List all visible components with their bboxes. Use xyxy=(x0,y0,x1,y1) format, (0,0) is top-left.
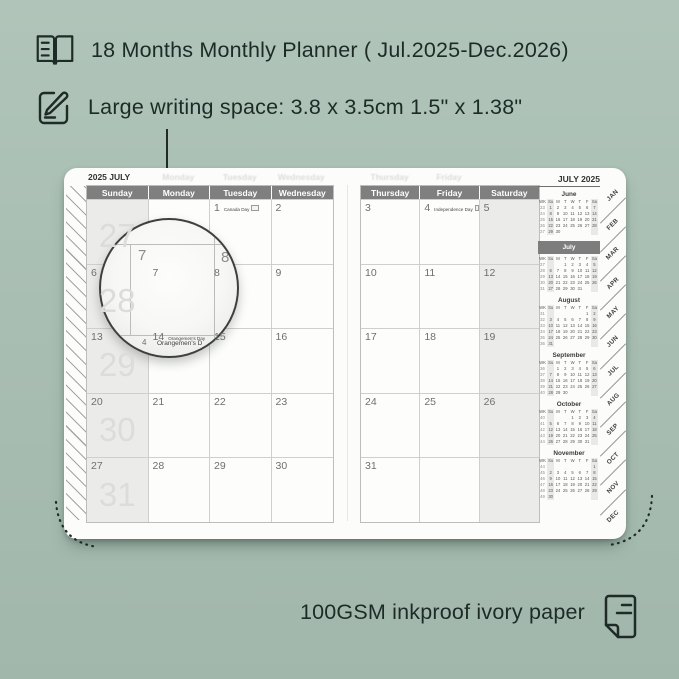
month-tab-label: DEC xyxy=(605,509,620,524)
mini-day-cell: 28 xyxy=(562,439,569,445)
date-number: 22 xyxy=(214,396,226,408)
date-number: 28 xyxy=(153,460,165,472)
planner-product-image: 18 Months Monthly Planner ( Jul.2025-Dec… xyxy=(0,0,679,679)
month-tab-jan: JAN xyxy=(600,181,626,210)
mini-day-cell: 30 xyxy=(569,286,576,292)
day-cell: 2913 xyxy=(87,328,149,393)
month-tab-dec: DEC xyxy=(600,502,626,531)
holiday-label: Independence Day xyxy=(434,207,473,212)
day-header: Thursday xyxy=(361,186,420,199)
cell-content: 9 xyxy=(272,265,334,279)
day-cell: 4Independence Day xyxy=(420,199,479,264)
date-number: 23 xyxy=(276,396,288,408)
mini-grid: WKSuMTWTFSa36123456377891011121338141516… xyxy=(538,360,600,396)
mini-day-cell: 30 xyxy=(562,390,569,396)
month-tab-label: JAN xyxy=(606,188,620,202)
day-cell: 14Orangemen's Day xyxy=(149,328,211,393)
mini-month-title: October xyxy=(538,401,600,408)
month-tab-label: MAY xyxy=(605,305,620,320)
cell-content: 29 xyxy=(210,458,271,472)
right-page-showthrough: ThursdayFriday xyxy=(360,172,538,183)
day-cell: 22 xyxy=(210,393,272,458)
cell-content: 23 xyxy=(272,394,334,408)
feature-paper: 100GSM inkproof ivory paper xyxy=(300,600,585,625)
mini-day-cell: 31 xyxy=(547,341,554,347)
day-cell: 17 xyxy=(361,328,420,393)
day-cell: 21 xyxy=(149,393,211,458)
date-number: 10 xyxy=(365,267,377,279)
mini-day-cell xyxy=(562,341,569,347)
month-tab-label: JUL xyxy=(606,364,620,378)
feature-paper-text: 100GSM inkproof ivory paper xyxy=(300,600,585,625)
mini-day-cell xyxy=(576,494,583,500)
ghost-day-header: Friday xyxy=(419,172,478,183)
week-number-watermark: 30 xyxy=(99,411,136,449)
cell-content: 31 xyxy=(361,458,419,472)
day-cell: 16 xyxy=(272,328,334,393)
day-cell: 3 xyxy=(361,199,420,264)
mini-day-cell xyxy=(562,494,569,500)
mini-day-cell xyxy=(583,341,590,347)
cell-content: 27 xyxy=(87,458,148,472)
day-cell: 19 xyxy=(480,328,539,393)
cell-content: 21 xyxy=(149,394,210,408)
mini-day-cell: 30 xyxy=(554,229,561,235)
mini-day-cell: 26 xyxy=(547,439,554,445)
date-number: 15 xyxy=(214,331,226,343)
mini-grid: WKSuMTWTFSa44145234567846910111213141547… xyxy=(538,458,600,500)
mini-day-cell xyxy=(591,229,598,235)
cell-content: 15 xyxy=(210,329,271,343)
month-tab-jun: JUN xyxy=(600,327,626,356)
month-tab-feb: FEB xyxy=(600,210,626,239)
holiday-label: Canada Day xyxy=(224,207,250,212)
day-cell: 29 xyxy=(210,457,272,522)
month-tab-label: OCT xyxy=(605,451,620,466)
cell-content: 6 xyxy=(87,265,148,279)
cell-content: 19 xyxy=(480,329,539,343)
day-cell xyxy=(480,457,539,522)
day-cell: 12 xyxy=(480,264,539,329)
mini-month-title: November xyxy=(538,450,600,457)
day-cell: 23 xyxy=(272,393,334,458)
mini-day-cell xyxy=(591,439,598,445)
magnified-date-8: 8 xyxy=(221,249,229,266)
cell-content: 25 xyxy=(420,394,478,408)
date-number: 7 xyxy=(153,267,159,279)
day-header: Sunday xyxy=(87,186,149,199)
mini-day-cell xyxy=(591,390,598,396)
day-cell: 9 xyxy=(272,264,334,329)
date-number: 8 xyxy=(214,267,220,279)
cell-content: 22 xyxy=(210,394,271,408)
cell-content: 8 xyxy=(210,265,271,279)
day-header: Tuesday xyxy=(210,186,272,199)
mini-day-cell xyxy=(583,494,590,500)
cell-content: 28 xyxy=(149,458,210,472)
mini-day-cell: 40 xyxy=(538,390,547,396)
mini-grid: WKSuMTWTFSa27123452867891011122913141516… xyxy=(538,256,600,292)
mini-day-cell xyxy=(583,229,590,235)
cell-content xyxy=(420,458,478,460)
mini-day-cell xyxy=(562,229,569,235)
magnified-date-7: 7 xyxy=(138,247,146,264)
week-number-watermark: 28 xyxy=(99,282,136,320)
month-tab-may: MAY xyxy=(600,298,626,327)
mini-grid: WKSuMTWTFSa40123441567891011421213141516… xyxy=(538,409,600,445)
date-number: 18 xyxy=(424,331,436,343)
date-number: 6 xyxy=(91,267,97,279)
mini-month-title: June xyxy=(538,191,600,198)
date-number: 26 xyxy=(484,396,496,408)
date-number: 17 xyxy=(365,331,377,343)
day-cell: 18 xyxy=(420,328,479,393)
day-cell: 3020 xyxy=(87,393,149,458)
cell-content: 4Independence Day xyxy=(420,200,478,214)
mini-day-cell: 36 xyxy=(538,341,547,347)
month-tab-label: FEB xyxy=(606,218,620,232)
day-cell: 30 xyxy=(272,457,334,522)
date-number: 9 xyxy=(276,267,282,279)
open-book-icon xyxy=(33,30,77,70)
ghost-day-header: Thursday xyxy=(360,172,419,183)
us-flag-icon xyxy=(475,205,479,211)
cell-content: 20 xyxy=(87,394,148,408)
mini-day-cell xyxy=(583,390,590,396)
mini-calendar-november: NovemberWKSuMTWTFSa441452345678469101112… xyxy=(538,449,600,500)
month-tab-label: JUN xyxy=(606,334,620,348)
cell-content: 3 xyxy=(361,200,419,214)
day-header: Saturday xyxy=(480,186,539,199)
paper-icon xyxy=(597,591,643,643)
mini-day-cell xyxy=(591,286,598,292)
mini-month-title: September xyxy=(538,352,600,359)
left-page-showthrough: MondayTuesdayWednesday xyxy=(86,172,332,183)
month-tab-mar: MAR xyxy=(600,239,626,268)
cell-content: 12 xyxy=(480,265,539,279)
feature-months-range-text: 18 Months Monthly Planner ( Jul.2025-Dec… xyxy=(91,38,569,63)
day-header: Monday xyxy=(149,186,211,199)
cell-content: 26 xyxy=(480,394,539,408)
cell-content: 13 xyxy=(87,329,148,343)
date-number: 27 xyxy=(91,460,103,472)
day-cell: 25 xyxy=(420,393,479,458)
month-tab-apr: APR xyxy=(600,269,626,298)
mini-day-cell xyxy=(591,494,598,500)
mini-day-cell: 29 xyxy=(547,229,554,235)
date-number: 19 xyxy=(484,331,496,343)
mini-day-cell xyxy=(554,494,561,500)
cell-content: 7 xyxy=(149,265,210,279)
date-number: 11 xyxy=(424,267,435,279)
page-spine-line xyxy=(347,185,348,521)
mini-day-cell xyxy=(569,390,576,396)
date-number: 1 xyxy=(214,202,220,214)
month-tab-label: MAR xyxy=(605,246,621,262)
day-header: Friday xyxy=(420,186,479,199)
mini-day-cell: 31 xyxy=(576,286,583,292)
month-tab-aug: AUG xyxy=(600,385,626,414)
month-tab-oct: OCT xyxy=(600,444,626,473)
mini-day-cell: 28 xyxy=(554,286,561,292)
mini-calendar-august: AugustWKSuMTWTFSa31123234567893310111213… xyxy=(538,296,600,347)
right-calendar-grid: ThursdayFridaySaturday34Independence Day… xyxy=(360,185,540,523)
mini-day-cell xyxy=(583,286,590,292)
mini-calendar-june: JuneWKSuMTWTFSa2312345672489101112131425… xyxy=(538,190,600,235)
mini-day-cell: 27 xyxy=(547,286,554,292)
mini-day-cell xyxy=(554,341,561,347)
cell-content: 14Orangemen's Day xyxy=(149,329,210,343)
date-number: 12 xyxy=(484,267,496,279)
cell-content: 10 xyxy=(361,265,419,279)
pencil-note-icon xyxy=(33,84,75,130)
day-cell: 3127 xyxy=(87,457,149,522)
date-number: 31 xyxy=(365,460,377,472)
cell-content: 1Canada Day xyxy=(210,200,271,214)
date-number: 30 xyxy=(276,460,288,472)
mini-day-cell: 31 xyxy=(538,286,547,292)
day-cell: 5 xyxy=(480,199,539,264)
week-number-watermark: 29 xyxy=(99,346,136,384)
mini-calendar-september: SeptemberWKSuMTWTFSa36123456377891011121… xyxy=(538,351,600,396)
cell-content: 5 xyxy=(480,200,539,214)
mini-day-cell xyxy=(591,341,598,347)
holiday-label: Orangemen's Day xyxy=(168,336,205,341)
mini-calendars: JuneWKSuMTWTFSa2312345672489101112131425… xyxy=(538,190,600,500)
week-number-watermark: 27 xyxy=(99,217,136,255)
date-number: 29 xyxy=(214,460,226,472)
day-cell: 15 xyxy=(210,328,272,393)
date-number: 14 xyxy=(153,331,165,343)
day-cell: 26 xyxy=(480,393,539,458)
mini-grid: WKSuMTWTFSa31123234567893310111213141516… xyxy=(538,305,600,347)
mini-day-cell: 29 xyxy=(554,390,561,396)
month-tab-strip: JANFEBMARAPRMAYJUNJULAUGSEPOCTNOVDEC xyxy=(600,181,626,532)
cell-content: 24 xyxy=(361,394,419,408)
date-number: 16 xyxy=(276,331,288,343)
day-cell: 11 xyxy=(420,264,479,329)
ghost-day-header xyxy=(86,172,148,183)
mini-day-cell xyxy=(569,494,576,500)
month-tab-nov: NOV xyxy=(600,473,626,502)
day-cell xyxy=(420,457,479,522)
date-number: 13 xyxy=(91,331,103,343)
feature-writing-space-text: Large writing space: 3.8 x 3.5cm 1.5" x … xyxy=(88,95,522,120)
cell-content: 2 xyxy=(272,200,334,214)
ghost-day-header: Tuesday xyxy=(209,172,271,183)
mini-day-cell xyxy=(576,341,583,347)
date-number: 4 xyxy=(424,202,430,214)
date-number: 25 xyxy=(424,396,436,408)
mini-calendar-sidebar: JULY 2025 JuneWKSuMTWTFSa231234567248910… xyxy=(538,174,600,500)
mini-day-cell: 28 xyxy=(547,390,554,396)
mini-day-cell xyxy=(576,229,583,235)
ghost-day-header: Wednesday xyxy=(271,172,333,183)
mini-day-cell: 31 xyxy=(583,439,590,445)
month-tab-label: NOV xyxy=(605,480,620,495)
month-tab-jul: JUL xyxy=(600,356,626,385)
current-month-bar: July xyxy=(538,241,600,254)
mini-day-cell: 29 xyxy=(569,439,576,445)
day-cell: 24 xyxy=(361,393,420,458)
mini-calendar-october: OctoberWKSuMTWTFSa4012344156789101142121… xyxy=(538,400,600,445)
mini-grid: WKSuMTWTFSa23123456724891011121314251516… xyxy=(538,199,600,235)
cell-content: 11 xyxy=(420,265,478,279)
cell-content xyxy=(149,200,210,202)
day-cell: 31 xyxy=(361,457,420,522)
day-cell: 2 xyxy=(272,199,334,264)
week-number-watermark: 31 xyxy=(99,476,136,514)
date-number: 24 xyxy=(365,396,377,408)
mini-day-cell: 30 xyxy=(576,439,583,445)
sidebar-month-title: JULY 2025 xyxy=(538,174,600,187)
cell-content: 30 xyxy=(272,458,334,472)
date-number: 2 xyxy=(276,202,282,214)
mini-day-cell: 44 xyxy=(538,439,547,445)
month-tab-sep: SEP xyxy=(600,415,626,444)
mini-day-cell: 30 xyxy=(547,494,554,500)
feature-writing-space: Large writing space: 3.8 x 3.5cm 1.5" x … xyxy=(33,84,522,130)
cell-content: 18 xyxy=(420,329,478,343)
mini-day-cell xyxy=(576,390,583,396)
mini-month-title: August xyxy=(538,297,600,304)
cell-content: 17 xyxy=(361,329,419,343)
mini-day-cell: 27 xyxy=(554,439,561,445)
cell-content xyxy=(87,200,148,202)
month-tab-label: SEP xyxy=(606,422,620,436)
date-number: 5 xyxy=(484,202,490,214)
mini-calendar-july: JulyWKSuMTWTFSa2712345286789101112291314… xyxy=(538,239,600,292)
mini-day-cell: 27 xyxy=(538,229,547,235)
canada-flag-icon xyxy=(251,205,259,211)
day-cell: 28 xyxy=(149,457,211,522)
mini-day-cell: 49 xyxy=(538,494,547,500)
page-edge-hatching xyxy=(66,186,86,520)
feature-months-range: 18 Months Monthly Planner ( Jul.2025-Dec… xyxy=(33,30,569,70)
date-number: 21 xyxy=(153,396,165,408)
date-number: 3 xyxy=(365,202,371,214)
ghost-day-header: Monday xyxy=(148,172,210,183)
ghost-day-header xyxy=(479,172,538,183)
mini-day-cell: 29 xyxy=(562,286,569,292)
cell-content xyxy=(480,458,539,460)
day-header: Wednesday xyxy=(272,186,334,199)
date-number: 20 xyxy=(91,396,103,408)
mini-day-cell xyxy=(569,229,576,235)
month-tab-label: APR xyxy=(605,276,620,291)
day-cell: 10 xyxy=(361,264,420,329)
cell-content: 16 xyxy=(272,329,334,343)
mini-day-cell xyxy=(569,341,576,347)
month-tab-label: AUG xyxy=(605,392,620,407)
